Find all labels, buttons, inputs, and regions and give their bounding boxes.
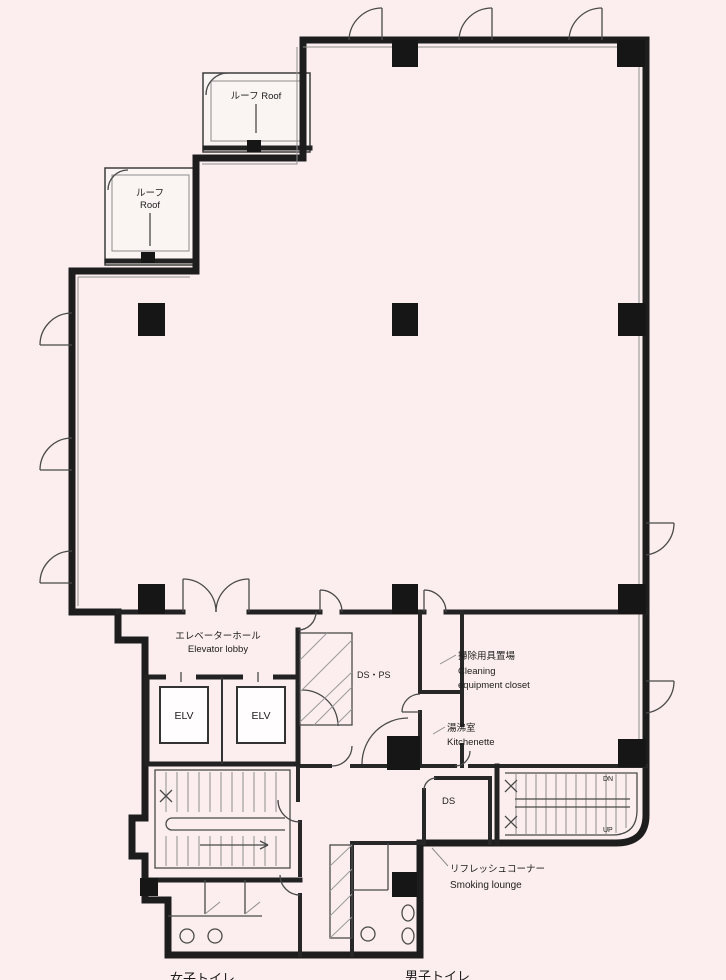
floor-plan-svg: ルーフ Roof ルーフ Roof xyxy=(0,0,726,980)
column-icon xyxy=(392,40,418,67)
column-icon xyxy=(247,140,261,152)
plan-background xyxy=(0,0,726,980)
column-icon xyxy=(138,303,165,336)
elevator-lobby-label-ja: エレベーターホール xyxy=(175,631,261,642)
column-icon xyxy=(140,878,158,896)
column-icon xyxy=(387,736,420,770)
ds-ps-label: DS・PS xyxy=(357,670,391,680)
floor-plan-page: { "title": "office-building-floor-plan",… xyxy=(0,0,726,980)
column-icon xyxy=(392,872,417,897)
cleaning-closet-label-ja: 掃除用具置場 xyxy=(458,650,516,662)
stair-dn-label: DN xyxy=(603,776,613,783)
elv-right-label: ELV xyxy=(251,710,270,722)
column-icon xyxy=(392,584,418,614)
smoking-lounge-label-ja: リフレッシュコーナー xyxy=(450,864,545,875)
column-icon xyxy=(392,303,418,336)
column-icon xyxy=(618,739,646,767)
column-icon xyxy=(617,40,645,67)
roof-lower-label-en: Roof xyxy=(140,200,160,211)
kitchenette-label-en: Kitchenette xyxy=(447,737,495,748)
column-icon xyxy=(138,584,165,614)
elv-left-label: ELV xyxy=(174,710,193,722)
womens-toilet-label: 女子トイレ xyxy=(170,971,235,980)
mens-toilet-label: 男子トイレ xyxy=(405,969,470,980)
column-icon xyxy=(141,252,155,263)
smoking-lounge-label-en: Smoking lounge xyxy=(450,880,522,891)
roof-lower-label-ja: ルーフ xyxy=(136,188,164,199)
roof-upper-label: ルーフ Roof xyxy=(231,91,282,102)
cleaning-closet-label-en1: Cleaning xyxy=(458,666,496,677)
roof-terrace-upper: ルーフ Roof xyxy=(203,73,310,152)
roof-terrace-lower: ルーフ Roof xyxy=(105,168,196,265)
column-icon xyxy=(618,584,646,614)
kitchenette-label-ja: 湯沸室 xyxy=(447,722,476,734)
cleaning-closet-label-en2: equipment closet xyxy=(458,680,530,691)
stair-up-label: UP xyxy=(603,827,613,834)
column-icon xyxy=(618,303,646,336)
ds-label: DS xyxy=(442,796,455,807)
elevator-lobby-label-en: Elevator lobby xyxy=(188,644,248,655)
